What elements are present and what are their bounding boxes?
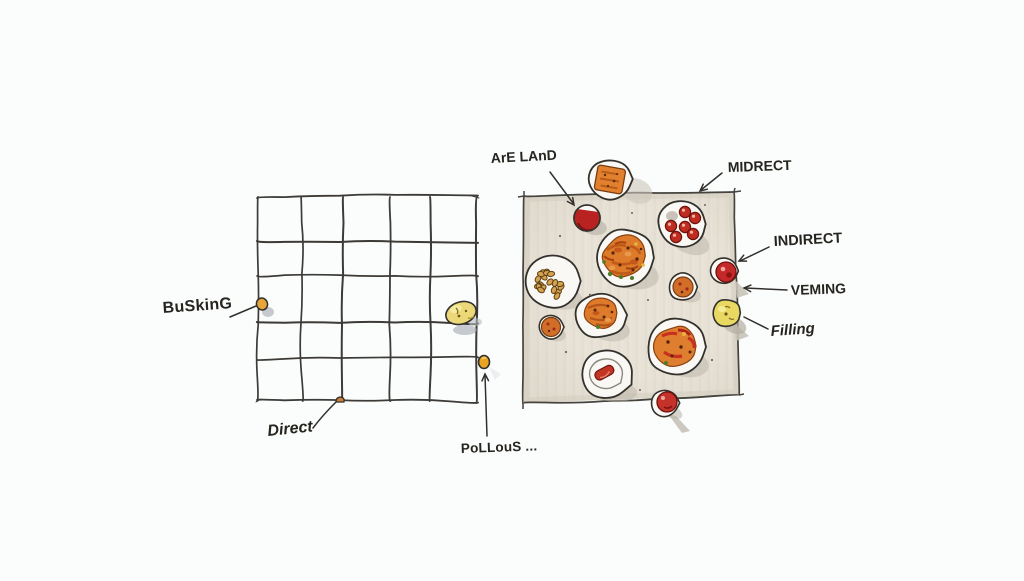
svg-text:PoLLouS ...: PoLLouS ... bbox=[461, 438, 538, 456]
svg-text:INDIRECT: INDIRECT bbox=[773, 230, 842, 250]
svg-text:BuSkinG: BuSkinG bbox=[162, 295, 233, 317]
svg-text:ArE LAnD: ArE LAnD bbox=[490, 147, 557, 166]
svg-text:Direct: Direct bbox=[267, 418, 315, 440]
svg-text:Filling: Filling bbox=[770, 320, 815, 340]
svg-text:MIDRECT: MIDRECT bbox=[728, 157, 793, 175]
svg-text:VEMING: VEMING bbox=[791, 280, 847, 298]
